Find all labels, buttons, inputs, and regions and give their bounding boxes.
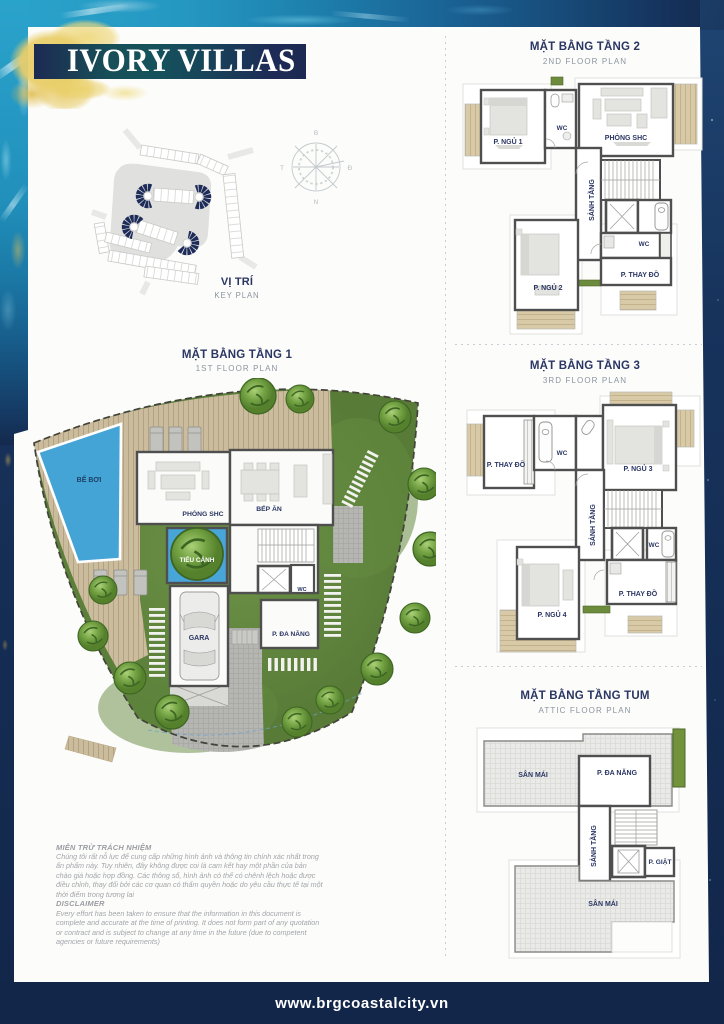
svg-text:P. NGỦ 2: P. NGỦ 2 bbox=[533, 283, 562, 292]
svg-text:P. ĐA NĂNG: P. ĐA NĂNG bbox=[597, 768, 638, 777]
svg-text:WC: WC bbox=[297, 587, 306, 593]
svg-text:TIỂU CẢNH: TIỂU CẢNH bbox=[180, 555, 215, 564]
svg-text:P. ĐA NĂNG: P. ĐA NĂNG bbox=[272, 629, 310, 638]
svg-text:SÂN MÁI: SÂN MÁI bbox=[518, 770, 548, 779]
svg-text:P. NGỦ 1: P. NGỦ 1 bbox=[493, 137, 522, 146]
svg-text:WC: WC bbox=[649, 542, 660, 549]
svg-text:GARA: GARA bbox=[189, 635, 210, 642]
svg-text:WC: WC bbox=[557, 450, 568, 457]
svg-text:SÂN MÁI: SÂN MÁI bbox=[588, 899, 618, 908]
svg-text:Đ: Đ bbox=[348, 165, 353, 172]
svg-text:P. NGỦ 3: P. NGỦ 3 bbox=[623, 464, 652, 473]
svg-text:BỂ BƠI: BỂ BƠI bbox=[77, 475, 102, 484]
svg-text:N: N bbox=[314, 199, 319, 206]
svg-text:WC: WC bbox=[557, 125, 568, 132]
svg-text:P. NGỦ 4: P. NGỦ 4 bbox=[537, 610, 566, 619]
svg-text:B: B bbox=[314, 130, 318, 137]
svg-text:WC: WC bbox=[639, 241, 650, 248]
svg-text:PHÒNG SHC: PHÒNG SHC bbox=[182, 509, 223, 518]
svg-text:T: T bbox=[280, 165, 284, 172]
svg-text:PHÒNG SHC: PHÒNG SHC bbox=[605, 133, 647, 142]
svg-text:P. GIẶT: P. GIẶT bbox=[649, 857, 672, 866]
